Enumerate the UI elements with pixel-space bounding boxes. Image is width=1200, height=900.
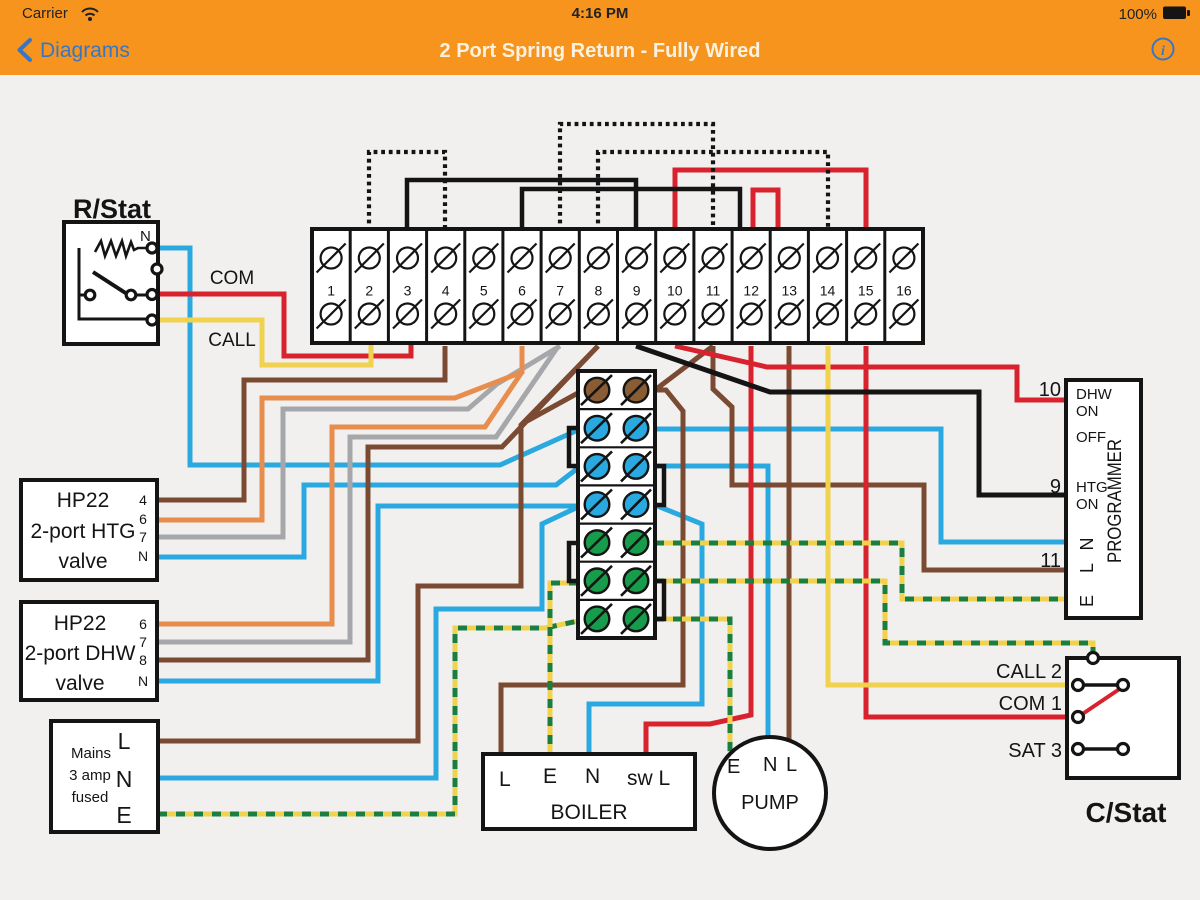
- svg-text:i: i: [1161, 44, 1165, 59]
- svg-text:3 amp: 3 amp: [69, 767, 111, 784]
- svg-text:N: N: [763, 754, 777, 776]
- svg-text:PROGRAMMER: PROGRAMMER: [1105, 439, 1126, 563]
- svg-text:BOILER: BOILER: [550, 801, 627, 824]
- svg-text:14: 14: [820, 283, 836, 299]
- svg-text:2: 2: [365, 283, 373, 299]
- svg-text:L: L: [118, 728, 131, 754]
- svg-text:12: 12: [743, 283, 759, 299]
- svg-text:N: N: [1077, 538, 1097, 551]
- svg-text:C/Stat: C/Stat: [1086, 797, 1167, 828]
- svg-text:11: 11: [706, 283, 721, 299]
- svg-text:8: 8: [139, 652, 147, 668]
- svg-text:L: L: [786, 754, 797, 776]
- svg-text:R/Stat: R/Stat: [73, 194, 151, 224]
- svg-text:L: L: [499, 768, 511, 791]
- svg-text:16: 16: [896, 283, 912, 299]
- svg-text:6: 6: [518, 283, 526, 299]
- svg-text:5: 5: [480, 283, 488, 299]
- svg-text:HP22: HP22: [54, 612, 107, 635]
- svg-text:OFF: OFF: [1076, 429, 1106, 446]
- svg-text:11: 11: [1040, 550, 1061, 572]
- svg-text:7: 7: [556, 283, 564, 299]
- svg-text:DHW: DHW: [1076, 386, 1113, 403]
- svg-text:PUMP: PUMP: [741, 792, 799, 814]
- svg-text:7: 7: [139, 634, 147, 650]
- svg-text:valve: valve: [58, 550, 107, 573]
- svg-text:10: 10: [667, 283, 683, 299]
- svg-text:10: 10: [1039, 379, 1061, 401]
- svg-text:4: 4: [139, 492, 147, 508]
- svg-text:E: E: [116, 802, 131, 828]
- svg-text:Mains: Mains: [71, 745, 111, 762]
- svg-text:3: 3: [404, 283, 412, 299]
- svg-text:ON: ON: [1076, 403, 1099, 420]
- svg-text:E: E: [727, 756, 740, 778]
- svg-text:L: L: [1077, 563, 1097, 573]
- svg-text:ON: ON: [1076, 496, 1099, 513]
- svg-text:6: 6: [139, 511, 147, 527]
- svg-text:N: N: [140, 228, 151, 245]
- svg-text:CALL: CALL: [208, 330, 256, 351]
- svg-text:N: N: [116, 766, 133, 792]
- svg-text:valve: valve: [55, 672, 104, 695]
- svg-text:N: N: [138, 673, 148, 689]
- svg-text:N: N: [138, 548, 148, 564]
- svg-text:6: 6: [139, 616, 147, 632]
- svg-text:sw L: sw L: [627, 767, 670, 790]
- svg-text:100%: 100%: [1119, 6, 1157, 23]
- svg-text:COM 1: COM 1: [999, 693, 1062, 715]
- svg-text:Carrier: Carrier: [22, 5, 68, 22]
- svg-text:15: 15: [858, 283, 874, 299]
- svg-text:4:16 PM: 4:16 PM: [572, 5, 629, 22]
- svg-text:E: E: [543, 765, 557, 788]
- svg-text:1: 1: [327, 283, 335, 299]
- svg-text:Diagrams: Diagrams: [40, 39, 130, 62]
- svg-text:HTG: HTG: [1076, 479, 1108, 496]
- svg-text:2-port HTG: 2-port HTG: [30, 520, 135, 543]
- svg-text:4: 4: [442, 283, 450, 299]
- svg-text:9: 9: [1050, 476, 1061, 498]
- svg-text:HP22: HP22: [57, 489, 110, 512]
- svg-text:CALL 2: CALL 2: [996, 661, 1062, 683]
- svg-text:9: 9: [633, 283, 641, 299]
- svg-text:SAT 3: SAT 3: [1008, 740, 1062, 762]
- svg-text:13: 13: [782, 283, 798, 299]
- svg-text:2-port DHW: 2-port DHW: [25, 642, 136, 665]
- svg-text:fused: fused: [72, 789, 109, 806]
- svg-text:E: E: [1077, 595, 1097, 607]
- svg-text:COM: COM: [210, 268, 254, 289]
- svg-text:N: N: [585, 765, 600, 788]
- svg-text:8: 8: [595, 283, 603, 299]
- svg-text:2 Port Spring Return - Fully W: 2 Port Spring Return - Fully Wired: [440, 40, 761, 62]
- svg-text:7: 7: [139, 529, 147, 545]
